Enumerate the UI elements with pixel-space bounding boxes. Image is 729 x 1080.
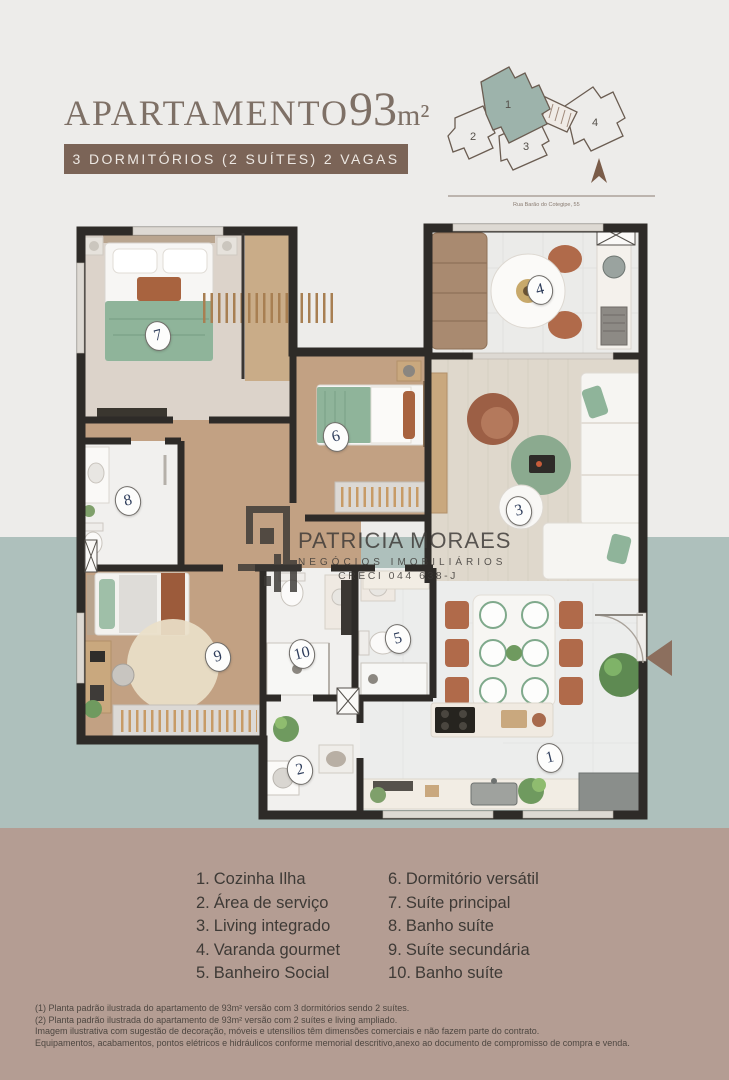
- legend-item-2: 2.Área de serviço: [196, 892, 340, 916]
- title-unit: m²: [397, 99, 429, 132]
- north-arrow-icon: [591, 158, 607, 183]
- legend-item-8-label: Banho suíte: [406, 917, 494, 935]
- title-text: APARTAMENTO: [64, 93, 349, 133]
- footer-line-3: Imagem ilustrativa com sugestão de decor…: [35, 1026, 705, 1038]
- legend-item-4-label: Varanda gourmet: [214, 941, 340, 959]
- legend-item-9: 9.Suíte secundária: [388, 939, 539, 963]
- rug-suite-secundaria: [127, 619, 219, 711]
- kitchen-plant-large-highlight: [604, 658, 622, 676]
- site-unit-3-number: 3: [523, 141, 529, 153]
- street-label: Rua Barão do Cotegipe, 55: [513, 202, 580, 208]
- legend-item-7-number: 7.: [388, 892, 402, 916]
- legend-item-2-number: 2.: [196, 892, 210, 916]
- legend-item-9-number: 9.: [388, 939, 402, 963]
- room-marker-3-number: 3: [513, 501, 525, 520]
- room-marker-10-number: 10: [292, 643, 312, 664]
- room-marker-9-number: 9: [212, 647, 224, 666]
- legend-item-1-number: 1.: [196, 868, 210, 892]
- room-marker-5-number: 5: [392, 629, 404, 648]
- legend-item-6-label: Dormitório versátil: [406, 870, 539, 888]
- legend-item-10: 10.Banho suíte: [388, 962, 539, 986]
- footer-line-1: (1) Planta padrão ilustrada do apartamen…: [35, 1003, 705, 1015]
- legend-item-3-label: Living integrado: [214, 917, 331, 935]
- kitchen-plant-large: [599, 653, 643, 697]
- legend-item-8: 8.Banho suíte: [388, 915, 539, 939]
- site-unit-1-number: 1: [505, 99, 511, 111]
- room-legend: 1.Cozinha Ilha 2.Área de serviço 3.Livin…: [196, 868, 539, 986]
- room-marker-7-number: 7: [152, 326, 164, 345]
- kitchen-island: [431, 703, 553, 737]
- legend-item-1-label: Cozinha Ilha: [214, 870, 306, 888]
- room-marker-2-number: 2: [294, 760, 306, 779]
- legend-item-6: 6.Dormitório versátil: [388, 868, 539, 892]
- entrance-arrow-icon: [646, 640, 672, 676]
- footer-disclaimer: (1) Planta padrão ilustrada do apartamen…: [35, 1003, 705, 1049]
- site-plan-drawing: 1 2 3 4 Rua Barão do Cotegipe, 55: [443, 56, 668, 216]
- dining-table: [445, 595, 583, 707]
- specs-badge: 3 DORMITÓRIOS (2 SUÍTES) 2 VAGAS: [64, 144, 408, 174]
- plant-suite-secundaria: [84, 700, 102, 718]
- sofa-varanda: [431, 233, 487, 349]
- legend-item-10-label: Banho suíte: [415, 964, 503, 982]
- legend-item-4-number: 4.: [196, 939, 210, 963]
- legend-column-1: 1.Cozinha Ilha 2.Área de serviço 3.Livin…: [196, 868, 340, 986]
- watermark-creci: CRECI 044 638-J: [298, 570, 498, 582]
- watermark: PATRICIA MORAES NEGÓCIOS IMOBILIÁRIOS CR…: [238, 480, 498, 592]
- site-unit-4-number: 4: [592, 117, 598, 129]
- grill-counter: [597, 231, 631, 349]
- legend-item-10-number: 10.: [388, 962, 411, 986]
- legend-item-5: 5.Banheiro Social: [196, 962, 340, 986]
- armchair-living: [467, 393, 519, 445]
- room-marker-8-number: 8: [122, 491, 134, 510]
- site-unit-2-number: 2: [470, 131, 476, 143]
- room-marker-6-number: 6: [330, 427, 342, 446]
- watermark-subtitle: NEGÓCIOS IMOBILIÁRIOS: [298, 557, 498, 568]
- title-area: 93: [349, 83, 397, 136]
- legend-item-7: 7.Suíte principal: [388, 892, 539, 916]
- room-marker-1-number: 1: [544, 748, 556, 767]
- page-title: APARTAMENTO93m²: [64, 86, 424, 134]
- legend-item-6-number: 6.: [388, 868, 402, 892]
- legend-item-9-label: Suíte secundária: [406, 941, 530, 959]
- legend-item-4: 4.Varanda gourmet: [196, 939, 340, 963]
- legend-item-5-label: Banheiro Social: [214, 964, 330, 982]
- tv-bench-suite: [97, 408, 167, 417]
- watermark-name: PATRICIA MORAES: [298, 528, 498, 554]
- legend-item-5-number: 5.: [196, 962, 210, 986]
- legend-item-2-label: Área de serviço: [214, 894, 329, 912]
- legend-item-7-label: Suíte principal: [406, 894, 511, 912]
- footer-line-4: Equipamentos, acabamentos, pontos elétri…: [35, 1038, 705, 1050]
- legend-item-3-number: 3.: [196, 915, 210, 939]
- wardrobe-suite-secundaria: [113, 705, 263, 738]
- header: APARTAMENTO93m² 3 DORMITÓRIOS (2 SUÍTES)…: [64, 86, 424, 174]
- legend-item-3: 3.Living integrado: [196, 915, 340, 939]
- footer-line-2: (2) Planta padrão ilustrada do apartamen…: [35, 1015, 705, 1027]
- legend-item-1: 1.Cozinha Ilha: [196, 868, 340, 892]
- legend-column-2: 6.Dormitório versátil 7.Suíte principal …: [388, 868, 539, 986]
- legend-item-8-number: 8.: [388, 915, 402, 939]
- room-marker-4-number: 4: [534, 280, 546, 299]
- site-plan: 1 2 3 4 Rua Barão do Cotegipe, 55: [443, 56, 668, 216]
- entry-mat: [579, 773, 641, 811]
